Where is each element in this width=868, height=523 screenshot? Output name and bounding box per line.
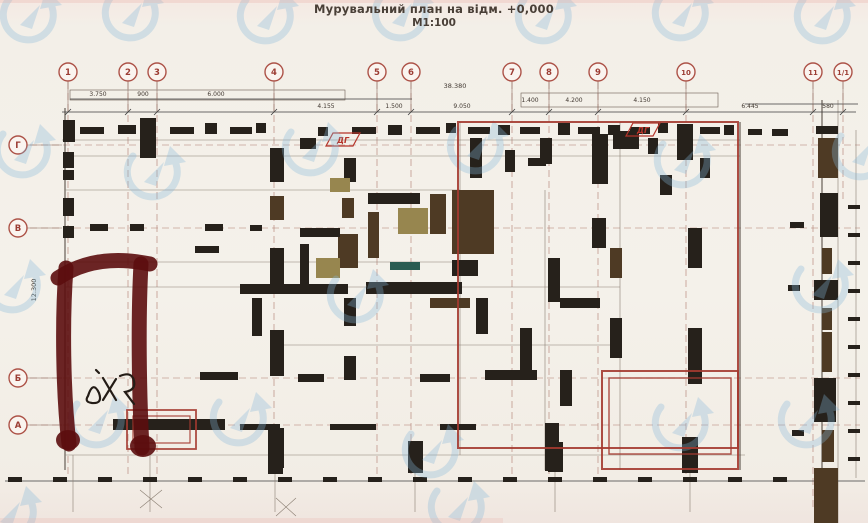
wall-segment <box>80 127 104 134</box>
tick-mark <box>728 477 742 482</box>
dimension-label: 1.400 <box>521 97 538 104</box>
tick-mark <box>503 477 517 482</box>
wall-segment <box>268 440 283 474</box>
wall-segment <box>452 260 478 276</box>
overall-dimension-label: 38.380 <box>444 82 467 90</box>
watermark-pointer <box>88 410 108 434</box>
wall-segment <box>688 328 702 384</box>
wall-segment <box>548 258 560 302</box>
title-block: Мурувальний план на відм. +0,000 М1:100 <box>0 2 868 29</box>
axis-bubble-label: Г <box>15 141 21 151</box>
tick-mark <box>683 477 697 482</box>
watermark-arrowhead <box>20 486 42 506</box>
watermark-logo-icon <box>127 146 186 197</box>
watermark-logo-icon <box>285 122 344 173</box>
axis-bubble-label: 6 <box>408 68 414 78</box>
wall-segment <box>790 222 804 228</box>
tick-mark <box>848 261 860 265</box>
axis-bubble-label: 1/1 <box>837 69 849 77</box>
wall-segment <box>270 196 284 220</box>
dimension-label: 580 <box>822 103 834 110</box>
wall-segment <box>613 131 639 149</box>
wall-segment <box>390 262 420 270</box>
wall-segment <box>468 127 490 134</box>
wall-segment <box>548 442 563 472</box>
axis-bubble-label: 1 <box>65 68 71 78</box>
tick-mark <box>848 373 860 377</box>
wall-segment <box>130 224 144 231</box>
watermark-pointer <box>144 162 164 186</box>
wall-segment <box>140 118 156 158</box>
wall-segment <box>520 328 532 372</box>
tick-mark <box>848 289 860 293</box>
wall-segment <box>476 298 488 334</box>
wall-segment <box>505 150 515 172</box>
wall-segment <box>748 129 762 135</box>
wall-segment <box>316 258 340 278</box>
wall-segment <box>298 374 324 382</box>
dimension-label: 6.000 <box>207 91 224 98</box>
tick-mark <box>143 477 157 482</box>
watermark-arrowhead <box>250 392 272 412</box>
wall-segment <box>688 228 702 268</box>
wall-segment <box>330 424 376 430</box>
dimension-box <box>521 93 718 107</box>
tick-mark <box>53 477 67 482</box>
p-mark-stroke <box>139 264 142 448</box>
wall-segment <box>398 208 428 234</box>
p-mark-blob <box>56 430 80 450</box>
wall-segment <box>270 330 284 376</box>
wall-segment <box>342 198 354 218</box>
wall-segment <box>540 138 552 164</box>
watermark-arrowhead <box>34 124 56 144</box>
watermark-pointer <box>448 497 468 521</box>
watermark-logo-icon <box>0 124 56 175</box>
wall-segment <box>250 225 262 231</box>
tick-mark <box>848 205 860 209</box>
dimension-label: 4.150 <box>633 97 650 104</box>
dimension-label: 3.750 <box>89 91 106 98</box>
dimension-label: 900 <box>137 91 149 98</box>
axis-bubble-label: 5 <box>374 68 380 78</box>
scanned-masonry-plan: Мурувальний план на відм. +0,000 М1:100 … <box>0 0 868 523</box>
tick-mark <box>638 477 652 482</box>
wall-segment <box>430 194 446 234</box>
dg-flag-label: ДГ <box>636 126 650 135</box>
dimension-label: 6.445 <box>741 103 758 110</box>
wall-segment <box>724 125 734 135</box>
dimension-label: 4.200 <box>565 97 582 104</box>
watermark-logo-icon <box>835 126 868 177</box>
wall-segment <box>560 370 572 406</box>
wall-segment <box>822 248 832 274</box>
watermark-pointer <box>852 142 868 166</box>
handwritten-scribble <box>96 370 99 373</box>
wall-segment <box>520 127 540 134</box>
watermark-arrowhead <box>692 397 714 417</box>
wall-segment <box>270 248 284 286</box>
wall-segment <box>772 129 788 136</box>
tick-mark <box>323 477 337 482</box>
wall-segment <box>420 374 450 382</box>
tick-mark <box>593 477 607 482</box>
wall-segment <box>368 212 379 258</box>
wall-segment <box>330 178 350 192</box>
tick-mark <box>8 477 22 482</box>
drawing-title: Мурувальний план на відм. +0,000 <box>0 2 868 16</box>
wall-segment <box>558 123 570 135</box>
wall-segment <box>90 224 108 231</box>
wall-segment <box>252 298 262 336</box>
wall-segment <box>430 298 470 308</box>
wall-segment <box>63 170 74 180</box>
axis-bubble-label: 9 <box>595 68 601 78</box>
wall-segment <box>230 127 252 134</box>
wall-segment <box>63 120 75 142</box>
wall-segment <box>560 298 600 308</box>
tick-mark <box>773 477 787 482</box>
watermark-logo-icon <box>213 392 272 443</box>
wall-segment <box>195 246 219 253</box>
wall-segment <box>610 248 622 278</box>
watermark-arrowhead <box>24 259 46 279</box>
wall-segment <box>63 226 74 238</box>
watermark-pointer <box>4 275 24 299</box>
handwritten-scribble <box>87 387 100 403</box>
plan-drawing: 12345678910111/1ГВБА3.7509006.0004.1551.… <box>0 0 868 523</box>
wall-segment <box>270 148 284 182</box>
wall-segment <box>368 193 420 204</box>
watermark-logo-icon <box>0 259 46 310</box>
wall-segment <box>300 244 309 284</box>
axis-bubble-label: 2 <box>125 68 131 78</box>
wall-segment <box>63 198 74 216</box>
watermark-pointer <box>347 285 367 309</box>
axis-bubble-label: 10 <box>681 69 691 77</box>
axis-bubble-label: 4 <box>271 68 277 78</box>
wall-segment <box>205 224 223 231</box>
watermark-logo-icon <box>0 486 42 523</box>
wall-segment <box>592 218 606 248</box>
tick-mark <box>368 477 382 482</box>
p-mark-blob <box>130 435 156 457</box>
wall-segment <box>63 152 74 168</box>
wall-segment <box>700 127 720 134</box>
wall-segment <box>256 123 266 133</box>
watermark-pointer <box>422 440 442 464</box>
watermark-arrowhead <box>694 134 716 154</box>
wall-segment <box>416 127 440 134</box>
axis-bubble-label: В <box>15 224 21 234</box>
wall-segment <box>822 332 832 372</box>
wall-segment <box>200 372 238 380</box>
wall-segment <box>820 193 838 237</box>
drawing-scale: М1:100 <box>0 17 868 29</box>
axis-bubble-label: 7 <box>509 68 515 78</box>
wall-segment <box>610 318 622 358</box>
watermark-pointer <box>0 502 20 523</box>
axis-bubble-label: Б <box>15 374 21 384</box>
wall-segment <box>814 468 838 523</box>
watermark-logo-icon <box>431 481 490 523</box>
dimension-label: 4.155 <box>317 103 334 110</box>
wall-segment <box>485 370 537 380</box>
wall-segment <box>388 125 402 135</box>
tick-mark <box>848 345 860 349</box>
tick-mark <box>848 233 860 237</box>
tick-mark <box>848 429 860 433</box>
axis-bubble-label: А <box>15 421 22 431</box>
axis-bubble-label: 3 <box>154 68 160 78</box>
wall-segment <box>113 419 225 430</box>
watermark-arrowhead <box>468 481 490 501</box>
tick-mark <box>233 477 247 482</box>
wall-segment <box>344 356 356 380</box>
tick-mark <box>848 317 860 321</box>
wall-segment <box>300 228 340 237</box>
axis-bubble-label: 8 <box>546 68 552 78</box>
wall-segment <box>338 234 358 268</box>
dimension-label: 1.500 <box>385 103 402 110</box>
tick-mark <box>188 477 202 482</box>
wall-segment <box>816 126 838 134</box>
tick-mark <box>458 477 472 482</box>
wall-segment <box>578 127 600 134</box>
tick-mark <box>278 477 292 482</box>
wall-segment <box>170 127 194 134</box>
dimension-label: 9.050 <box>453 103 470 110</box>
tick-mark <box>98 477 112 482</box>
p-mark-stroke <box>64 268 69 444</box>
tick-mark <box>848 401 860 405</box>
tick-mark <box>848 457 860 461</box>
wall-segment <box>118 125 136 134</box>
tick-mark <box>548 477 562 482</box>
axis-bubble-label: 11 <box>808 69 818 77</box>
wall-segment <box>592 134 608 184</box>
wall-segment <box>205 123 217 134</box>
watermark-logo-icon <box>71 394 130 445</box>
